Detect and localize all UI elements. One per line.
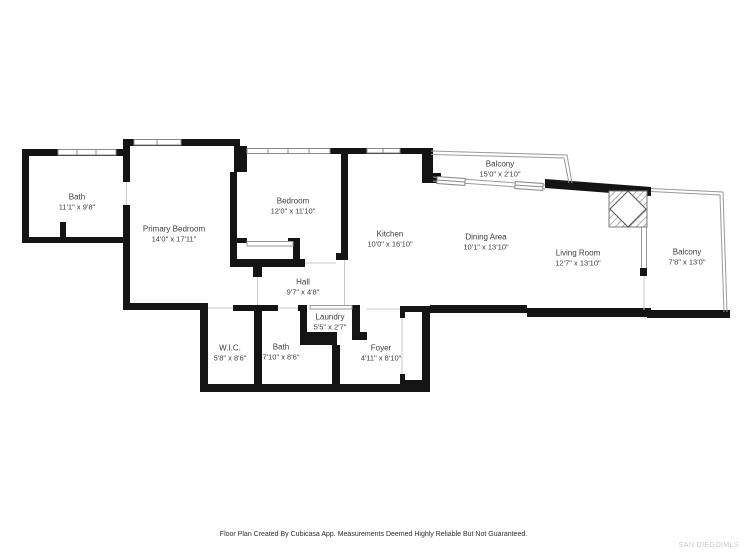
window-kitchen [367, 149, 400, 154]
windows [58, 140, 543, 191]
walls [22, 139, 730, 392]
floorplan-drawing [0, 0, 747, 560]
bedroom-closet-door [247, 242, 293, 247]
window-primary-bedroom [134, 140, 181, 146]
sandiego-mls-logo: SAN DIEGO|MLS [679, 542, 739, 549]
laundry-bifold-door [310, 306, 352, 310]
fireplace-icon [609, 191, 647, 227]
window-living-balcony [515, 182, 543, 191]
sliding-doors [247, 196, 647, 309]
window-bath-upper [58, 150, 116, 156]
window-dining-balcony [437, 177, 465, 186]
floorplan-page: Bath 11'1" x 9'8" Primary Bedroom 14'0" … [0, 0, 747, 560]
balcony-railings [431, 151, 727, 312]
disclaimer-text: Floor Plan Created By Cubicasa App. Meas… [220, 531, 527, 538]
window-bedroom [247, 149, 330, 154]
